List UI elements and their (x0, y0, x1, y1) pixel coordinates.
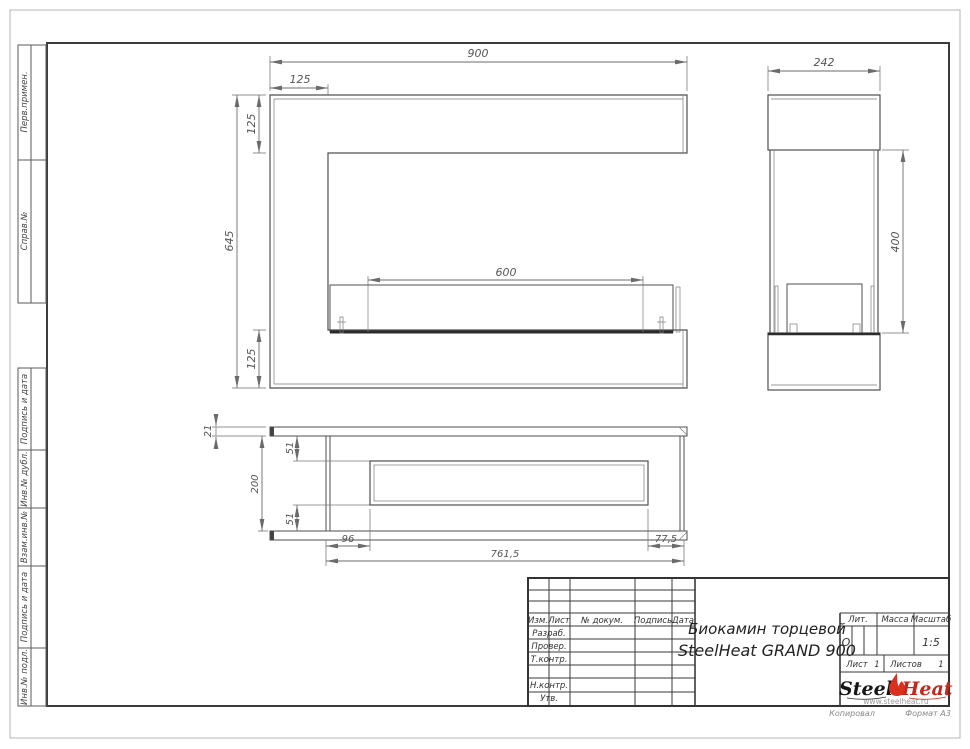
dim-front-left-top: 125 (245, 114, 258, 135)
margin-label-inv-dubl: Инв.№ дубл. (20, 451, 30, 506)
margin-label-sprav-no: Справ.№ (20, 212, 30, 251)
tb-list-value: 1 (874, 660, 879, 670)
margin-column: Перв.примен. Справ.№ Подпись и дата Инв.… (18, 45, 46, 706)
footer-kopiroval: Копировал (829, 709, 875, 718)
dim-plan-right-offset: 77,5 (655, 534, 677, 545)
side-view-dimensions: 242 400 (768, 56, 909, 333)
tb-row-razrab: Разраб. (532, 629, 565, 639)
margin-label-perv-primen: Перв.примен. (20, 71, 30, 132)
margin-label-vzam-inv: Взам.инв.№ (20, 511, 30, 563)
tb-scale-value: 1:5 (922, 636, 940, 649)
footer-notes: Копировал Формат А3 (829, 709, 951, 718)
tb-col-doc: № докум. (580, 616, 623, 626)
tb-col-list: Лист (547, 616, 571, 626)
tb-listov-label: Листов (889, 660, 922, 670)
side-view (768, 95, 880, 390)
tb-title-line1: Биокамин торцевой (688, 620, 846, 638)
tb-listov-value: 1 (938, 660, 943, 670)
tb-row-prover: Провер. (531, 642, 566, 652)
steelheat-logo: Steel Heat www.steelheat.ru (839, 673, 953, 706)
tb-lit-value: О (842, 636, 851, 649)
dim-plan-left-offset: 96 (342, 534, 355, 545)
flame-icon (889, 673, 905, 696)
footer-format: Формат А3 (905, 709, 951, 718)
technical-drawing: Перв.примен. Справ.№ Подпись и дата Инв.… (0, 0, 970, 749)
margin-label-inv-podl: Инв.№ подл. (20, 649, 30, 705)
tb-mass-label: Масса (881, 615, 908, 625)
tb-col-izm: Изм. (528, 616, 548, 626)
front-view-dimensions: 900 125 645 125 125 600 (223, 47, 687, 388)
tb-scale-label: Масштаб (911, 615, 951, 625)
tb-col-sign: Подпись (634, 616, 672, 626)
plan-view (270, 427, 687, 540)
logo-url: www.steelheat.ru (863, 697, 929, 706)
dim-front-burner: 600 (496, 266, 517, 279)
dim-plan-wall-bottom: 51 (285, 513, 296, 526)
margin-label-podpis-data-2: Подпись и дата (20, 572, 30, 642)
front-view (270, 95, 687, 388)
dim-front-top-offset: 125 (290, 73, 311, 86)
tb-title-line2: SteelHeat GRAND 900 (678, 641, 856, 660)
dim-plan-depth: 200 (250, 474, 261, 493)
dim-side-opening-height: 400 (889, 232, 902, 253)
dim-front-left-bottom: 125 (245, 349, 258, 370)
dim-side-depth: 242 (814, 56, 835, 69)
dim-front-width: 900 (468, 47, 489, 60)
tb-row-tkontr: Т.контр. (531, 655, 568, 665)
dim-plan-flange: 21 (203, 425, 214, 438)
margin-label-podpis-data-1: Подпись и дата (20, 374, 30, 444)
tb-lit-label: Лит. (847, 615, 868, 625)
drawing-sheet: Перв.примен. Справ.№ Подпись и дата Инв.… (0, 0, 970, 749)
dim-plan-length: 761,5 (491, 549, 520, 560)
dim-front-height: 645 (223, 231, 236, 252)
tb-row-nkontr: Н.контр. (530, 681, 568, 691)
dim-plan-wall-top: 51 (285, 442, 296, 455)
plan-view-dimensions: 21 200 51 51 96 77,5 761,5 (203, 414, 684, 566)
tb-row-utv: Утв. (540, 694, 558, 704)
tb-list-label: Лист (845, 660, 869, 670)
